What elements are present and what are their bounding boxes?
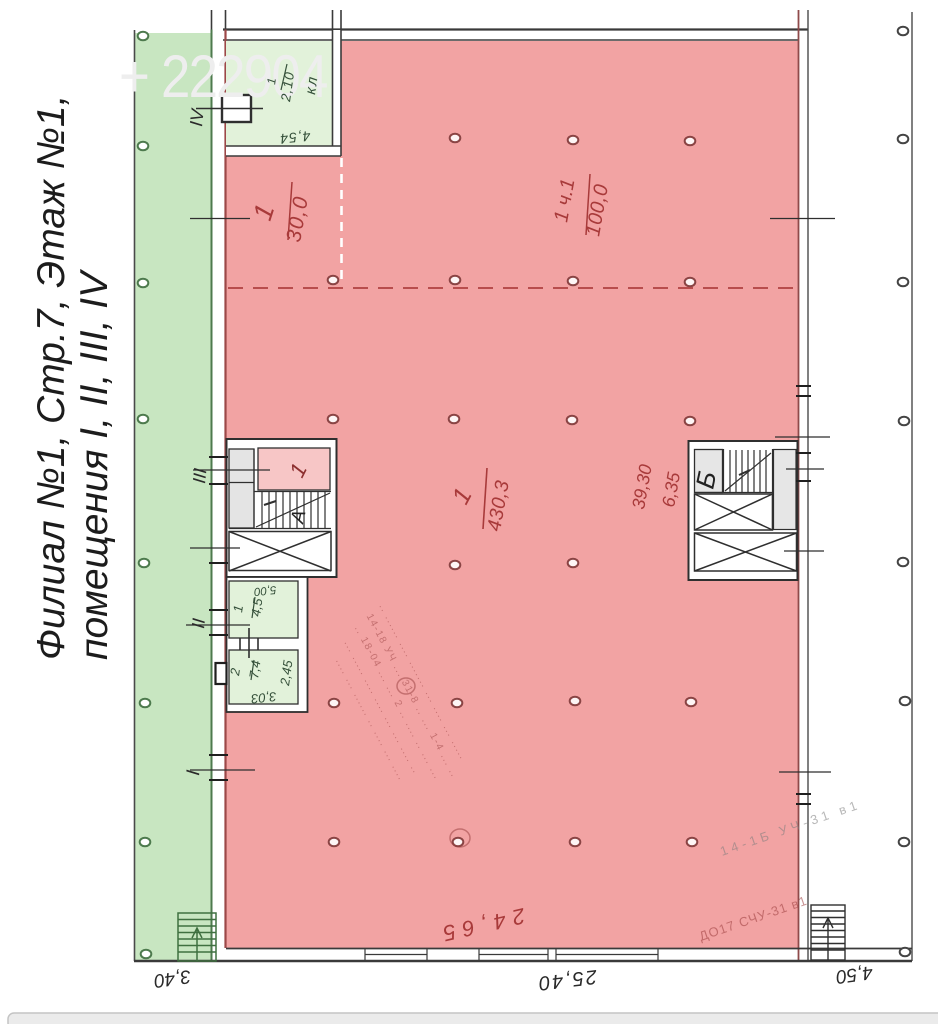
svg-text:II: II [188,617,209,629]
svg-text:5,00: 5,00 [253,583,277,597]
svg-text:3,03: 3,03 [250,689,277,707]
svg-text:4,54: 4,54 [279,128,312,147]
svg-text:4,5: 4,5 [248,597,265,618]
svg-text:помещения I, II, III, IV: помещения I, II, III, IV [73,268,116,660]
svg-text:Филиал №1, Стр.7, Этаж №1,: Филиал №1, Стр.7, Этаж №1, [30,95,73,660]
svg-text:7,4: 7,4 [246,659,263,679]
svg-text:III: III [189,467,210,484]
svg-text:кл: кл [302,74,322,96]
